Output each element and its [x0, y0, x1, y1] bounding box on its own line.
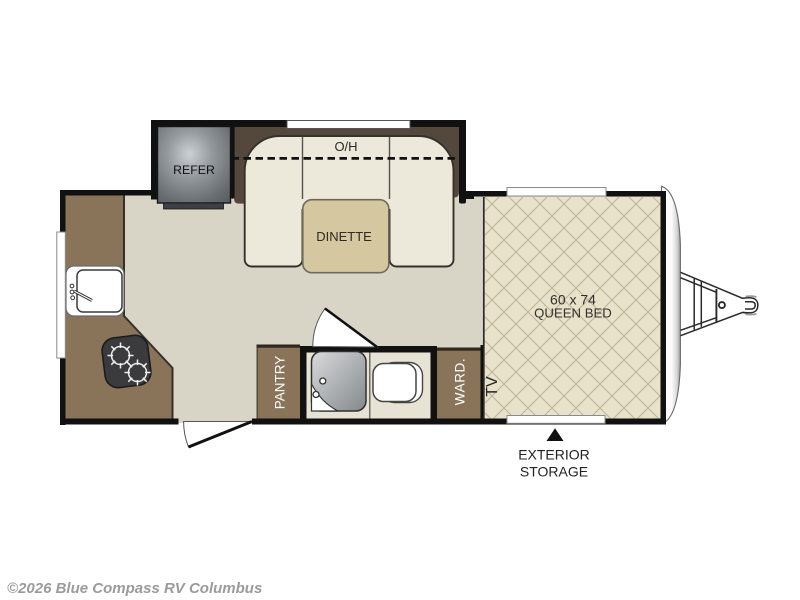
svg-text:O/H: O/H — [334, 139, 357, 154]
svg-text:TV: TV — [484, 376, 501, 397]
svg-text:WARD.: WARD. — [453, 358, 468, 406]
svg-text:PANTRY: PANTRY — [273, 356, 288, 410]
svg-text:EXTERIOR: EXTERIOR — [518, 447, 590, 463]
svg-text:QUEEN BED: QUEEN BED — [534, 306, 612, 321]
svg-text:REFER: REFER — [173, 163, 215, 177]
svg-text:STORAGE: STORAGE — [520, 464, 588, 480]
svg-text:©2026 Blue Compass RV Columbus: ©2026 Blue Compass RV Columbus — [7, 580, 262, 597]
svg-text:DINETTE: DINETTE — [316, 229, 372, 244]
